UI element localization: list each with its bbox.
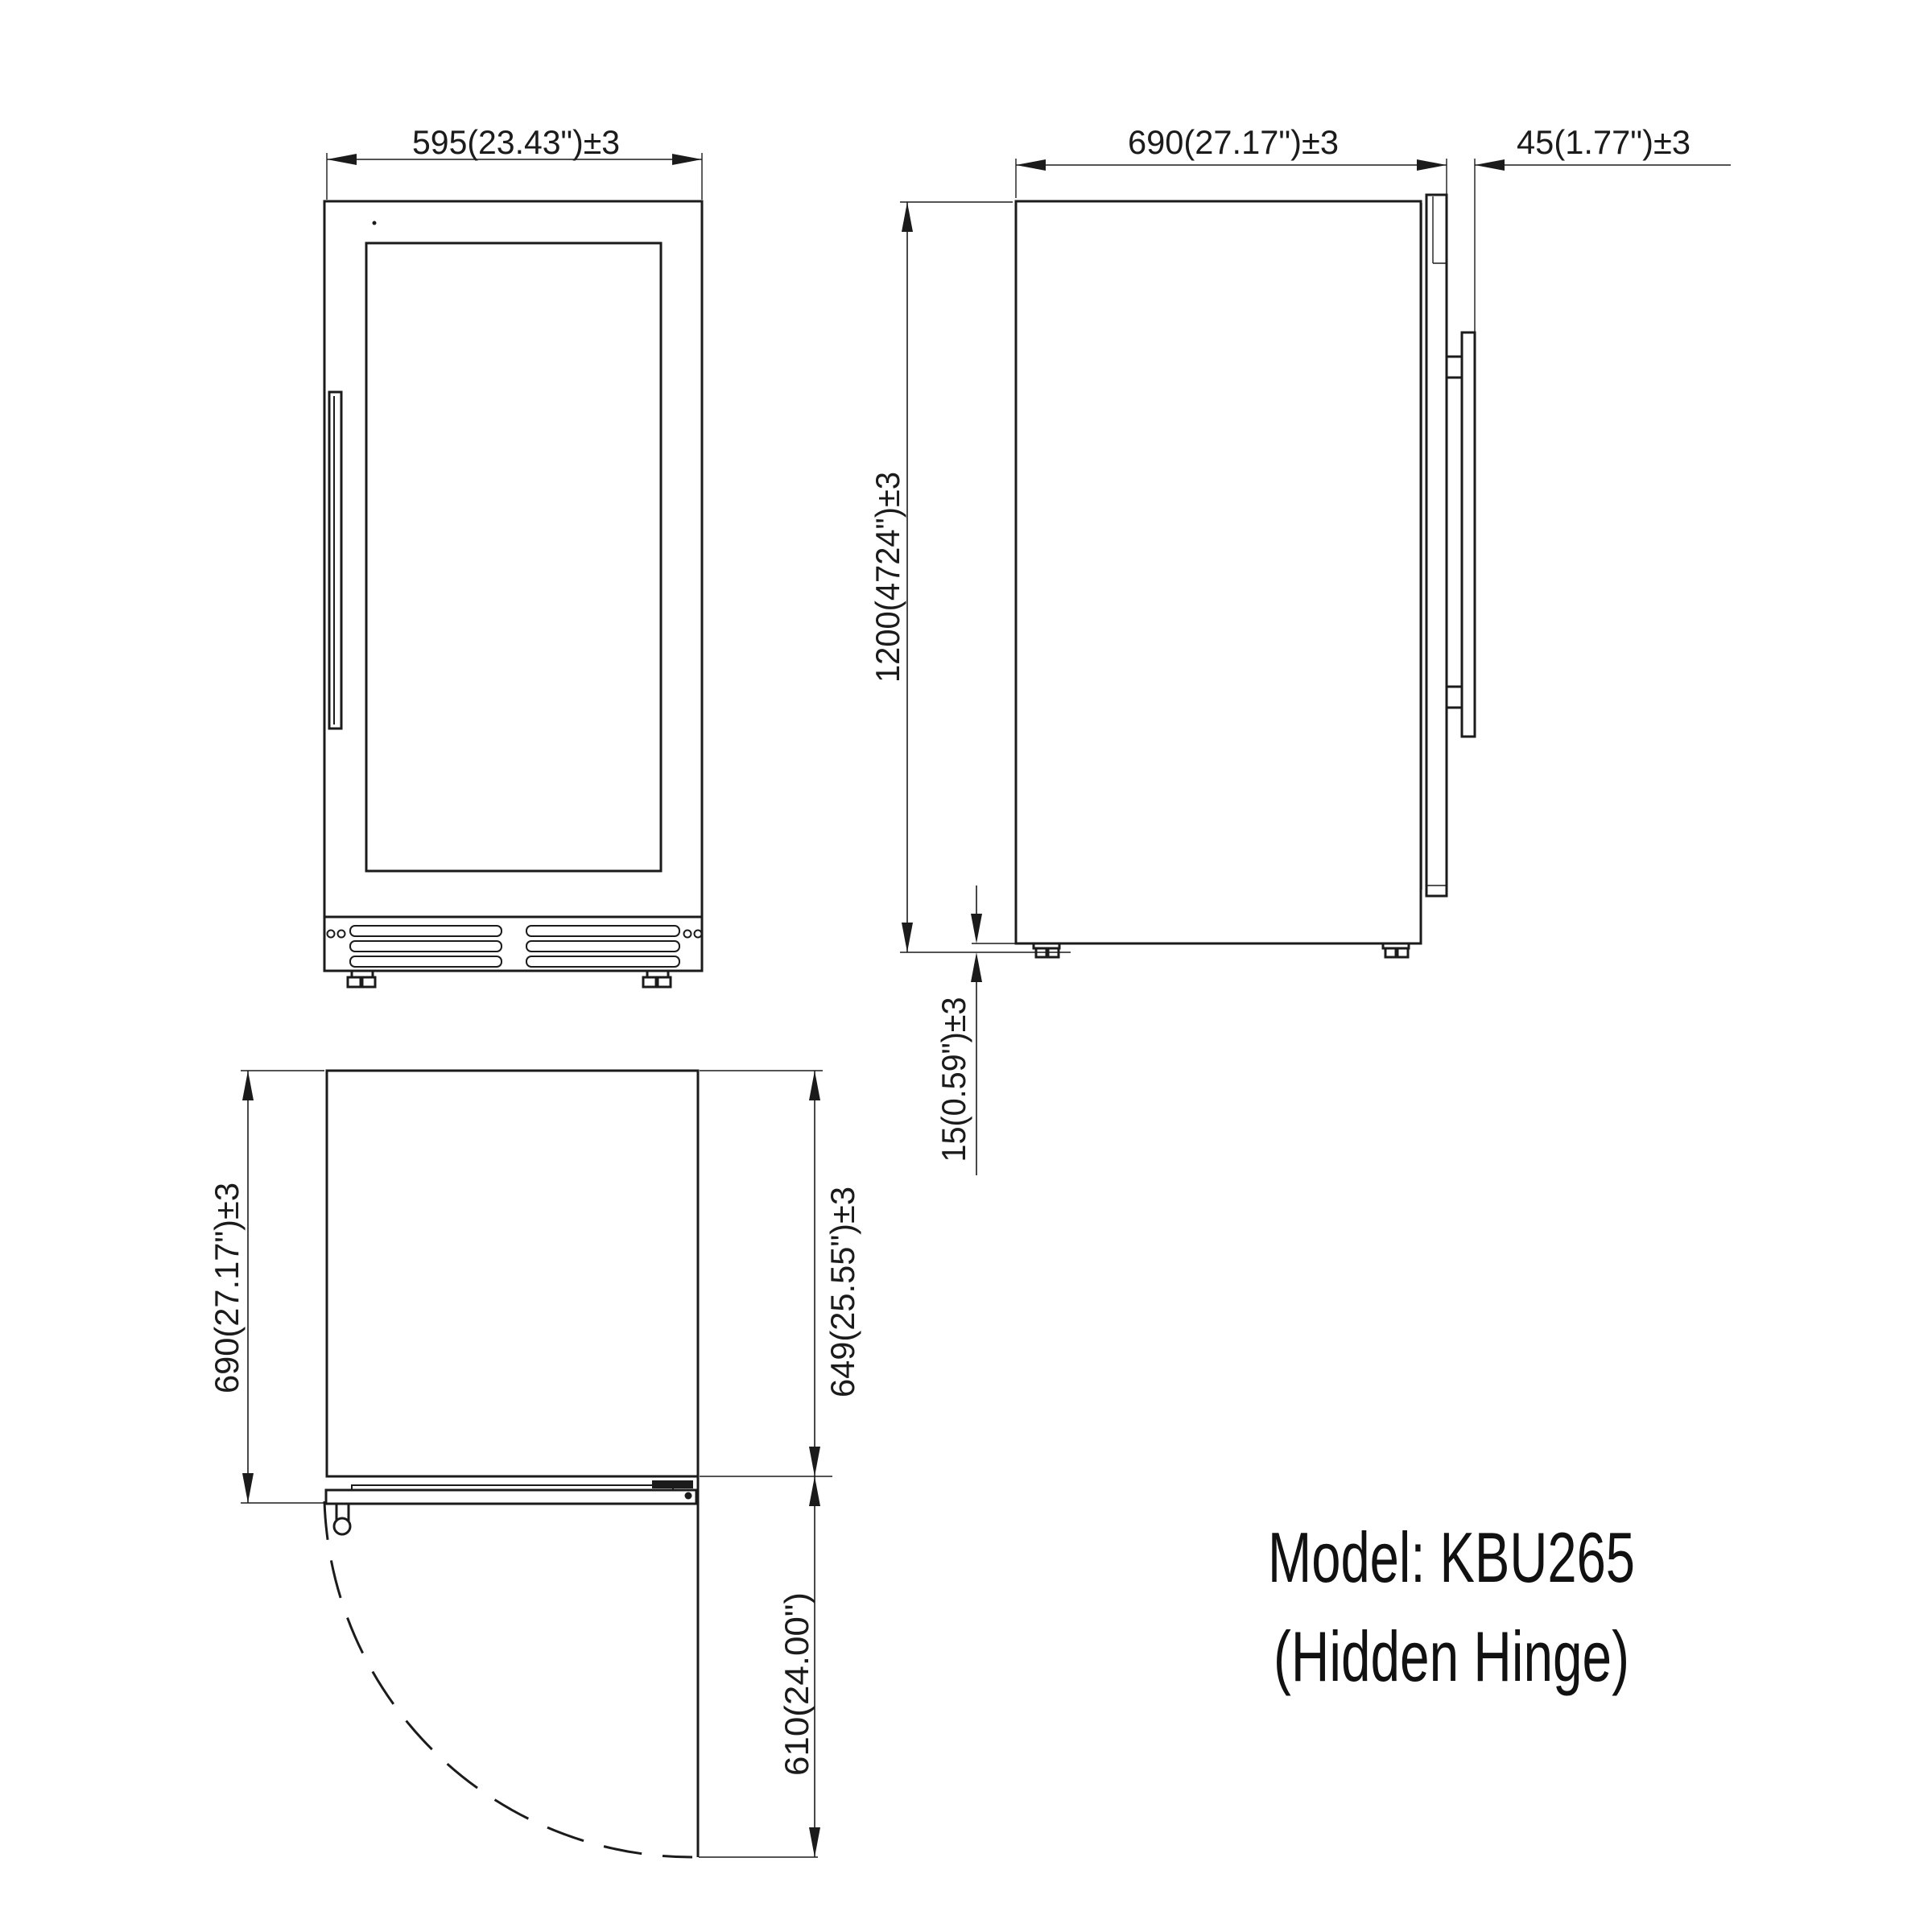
cabinet-side-outline xyxy=(1016,201,1421,943)
arrowhead xyxy=(242,1071,254,1100)
door-handle-side xyxy=(1462,332,1475,737)
side-foot-left xyxy=(1034,943,1059,957)
side-foot-right xyxy=(1383,943,1409,957)
handle-arm-top xyxy=(1447,357,1462,378)
handle-plan-bar xyxy=(334,1518,350,1534)
foot-pad xyxy=(658,977,671,987)
arrowhead xyxy=(672,154,702,165)
arrowhead xyxy=(1016,159,1046,171)
foot-height-dimension-label: 15(0.59")±3 xyxy=(935,997,972,1162)
top-overall-depth-label: 690(27.17")±3 xyxy=(208,1183,246,1393)
hidden-hinge-block xyxy=(652,1480,693,1488)
front-view: 595(23.43")±3 xyxy=(324,123,702,987)
model-label: Model: KBU265 (Hidden Hinge) xyxy=(1268,1517,1635,1696)
arrowhead xyxy=(809,1827,820,1857)
foot-pad xyxy=(348,977,361,987)
arrowhead xyxy=(327,154,357,165)
door-top-profile xyxy=(326,1490,696,1504)
arrowhead xyxy=(971,914,982,943)
technical-drawing: 595(23.43")±3 xyxy=(0,0,1932,1932)
foot-pad xyxy=(643,977,656,987)
door-side-profile xyxy=(1426,195,1447,896)
model-number-text: Model: KBU265 xyxy=(1268,1517,1635,1597)
top-view: 690(27.17")±3 649(25.55")±3 610(24.00") xyxy=(208,1071,861,1857)
arrowhead xyxy=(809,1071,820,1100)
side-view: 690(27.17")±3 45(1.77")±3 xyxy=(869,123,1731,1175)
front-foot-left xyxy=(348,971,375,987)
door-thickness-dimension-label: 45(1.77")±3 xyxy=(1517,123,1690,161)
arrowhead xyxy=(809,1447,820,1476)
arrowhead xyxy=(1475,159,1505,171)
hinge-type-text: (Hidden Hinge) xyxy=(1274,1616,1629,1696)
cabinet-top-outline xyxy=(327,1071,698,1476)
door-swing-arc xyxy=(324,1501,692,1857)
foot-pad xyxy=(1385,948,1396,957)
foot-pad xyxy=(1397,948,1408,957)
arrowhead xyxy=(902,923,913,952)
front-width-dimension-label: 595(23.43")±3 xyxy=(412,123,620,161)
arrowhead xyxy=(902,202,913,232)
door-handle-front xyxy=(329,392,341,729)
cabinet-front-outline xyxy=(324,201,702,917)
arrowhead xyxy=(971,952,982,982)
foot-pad xyxy=(362,977,375,987)
height-dimension-label: 1200(4724")±3 xyxy=(869,472,906,683)
door-clearance-label: 610(24.00") xyxy=(778,1592,815,1776)
arrowhead xyxy=(242,1473,254,1503)
arrowhead xyxy=(809,1476,820,1506)
handle-arm-bottom xyxy=(1447,687,1462,708)
top-body-depth-label: 649(25.55")±3 xyxy=(824,1187,861,1397)
arrowhead xyxy=(1417,159,1447,171)
hinge-screw xyxy=(685,1492,692,1500)
front-foot-right xyxy=(643,971,671,987)
door-pin-dot xyxy=(373,221,377,225)
side-depth-dimension-label: 690(27.17")±3 xyxy=(1128,123,1339,161)
